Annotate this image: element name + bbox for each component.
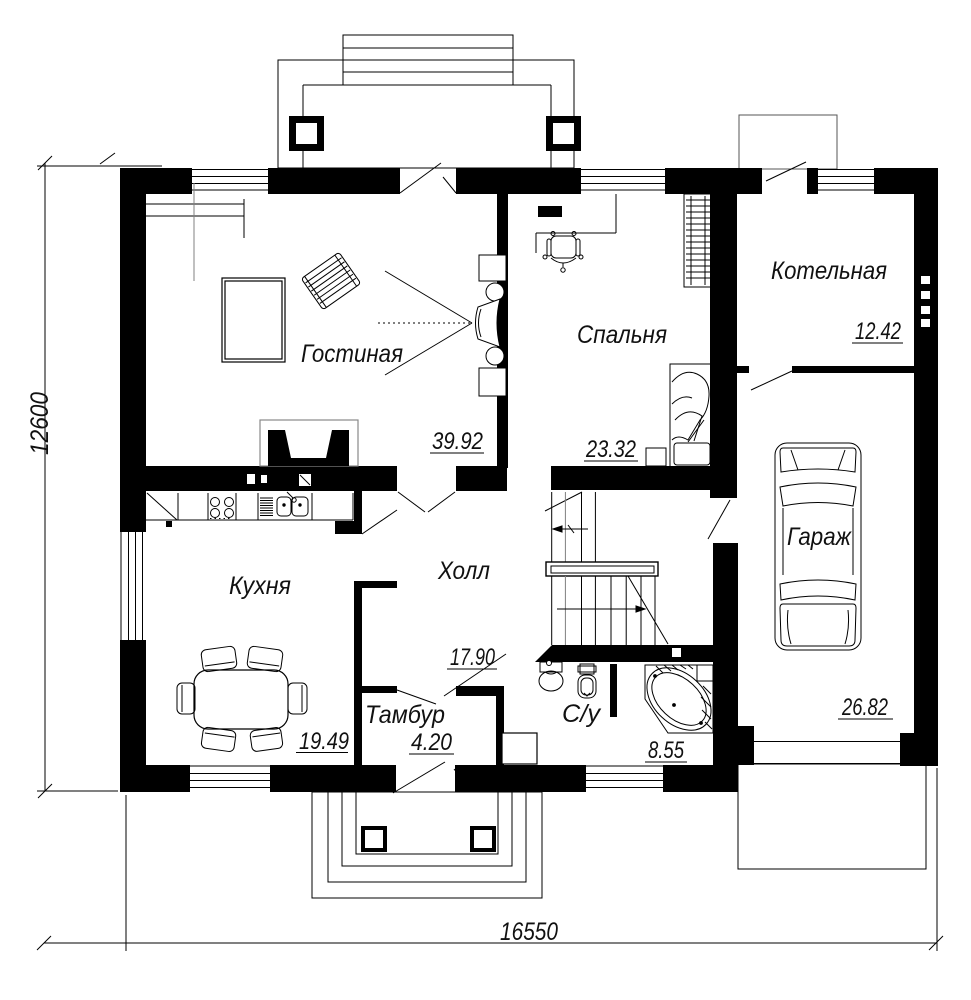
- svg-text:Гостиная: Гостиная: [301, 340, 403, 368]
- svg-text:Холл: Холл: [437, 557, 490, 585]
- svg-text:С/у: С/у: [562, 700, 602, 728]
- svg-text:Спальня: Спальня: [577, 321, 667, 349]
- svg-text:19.49: 19.49: [299, 728, 349, 755]
- svg-text:17.90: 17.90: [450, 644, 495, 671]
- svg-text:12.42: 12.42: [855, 318, 901, 345]
- svg-text:26.82: 26.82: [841, 694, 888, 721]
- svg-text:23.32: 23.32: [585, 436, 636, 463]
- svg-text:Гараж: Гараж: [787, 523, 853, 551]
- svg-text:12600: 12600: [26, 392, 54, 455]
- svg-text:16550: 16550: [500, 918, 558, 946]
- svg-text:Котельная: Котельная: [771, 257, 887, 285]
- svg-text:4.20: 4.20: [411, 729, 453, 756]
- svg-text:39.92: 39.92: [432, 428, 483, 455]
- svg-text:Тамбур: Тамбур: [365, 701, 445, 729]
- svg-text:Кухня: Кухня: [229, 572, 291, 600]
- svg-text:8.55: 8.55: [648, 737, 684, 764]
